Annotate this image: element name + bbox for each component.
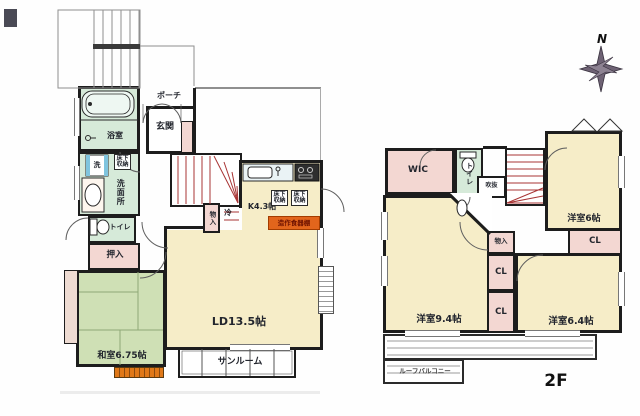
- sunroom-label: サンルーム: [210, 356, 270, 369]
- floor-plan-image: ポーチ 玄関 浴室 洗面所 洗 床下収納 トイレ 押入 和室6.75帖 LD13…: [0, 0, 640, 416]
- compass-north-label: N: [594, 32, 610, 46]
- bathroom-label: 浴室: [98, 130, 132, 142]
- cupboard-label: 造作食器棚: [268, 216, 320, 230]
- roof-balcony-wide: [383, 334, 597, 360]
- tatami-side-strip: [64, 270, 78, 344]
- toilet-label-2f: トイレ: [463, 158, 475, 190]
- underfloor-storage-label-2: 床下収納: [271, 190, 288, 206]
- living-dining-label: LD13.5帖: [206, 315, 272, 329]
- closet-mid-label: CL: [490, 266, 512, 278]
- washer-label: 洗: [90, 161, 104, 170]
- carport-structure: [58, 10, 194, 88]
- entrance-label: 玄関: [150, 122, 180, 134]
- toilet-label-1f: トイレ: [106, 222, 134, 234]
- shoe-cabinet: [181, 121, 193, 153]
- underfloor-storage-label-1: 床下収納: [114, 154, 131, 170]
- living-dining-room: [166, 230, 320, 347]
- porch-label: ポーチ: [146, 90, 192, 102]
- compass-icon: [580, 46, 622, 92]
- bathroom-room: [78, 86, 140, 152]
- staircase-2f: [505, 148, 545, 206]
- storage-label-2f: 物入: [490, 236, 512, 247]
- bedroom64-label: 洋室6.4帖: [540, 315, 602, 328]
- storage-label-1f: 物入: [205, 206, 218, 230]
- veranda-deck: [114, 367, 164, 378]
- closet6-label: CL: [584, 235, 606, 247]
- floor-2f-label: 2F: [538, 372, 574, 392]
- tatami-room-label: 和室6.75帖: [86, 350, 158, 363]
- carport-beam: [93, 44, 140, 49]
- closet-low-label: CL: [490, 306, 512, 318]
- underfloor-storage-label-3: 床下収納: [291, 190, 308, 206]
- site-marker: [4, 9, 17, 27]
- bedroom6-label: 洋室6帖: [558, 214, 610, 226]
- staircase-1f: [170, 153, 242, 207]
- oshiire-label: 押入: [98, 249, 132, 261]
- bedroom94-label: 洋室9.4帖: [408, 313, 470, 326]
- side-deck: [318, 266, 334, 314]
- washroom-label: 洗面所: [114, 170, 126, 214]
- balcony-label: ルーフバルコニー: [394, 366, 456, 377]
- void-label: 吹抜: [479, 181, 504, 191]
- wic-label: WIC: [400, 165, 436, 177]
- window-triangles: [572, 119, 622, 131]
- fridge-label: 冷: [222, 208, 234, 218]
